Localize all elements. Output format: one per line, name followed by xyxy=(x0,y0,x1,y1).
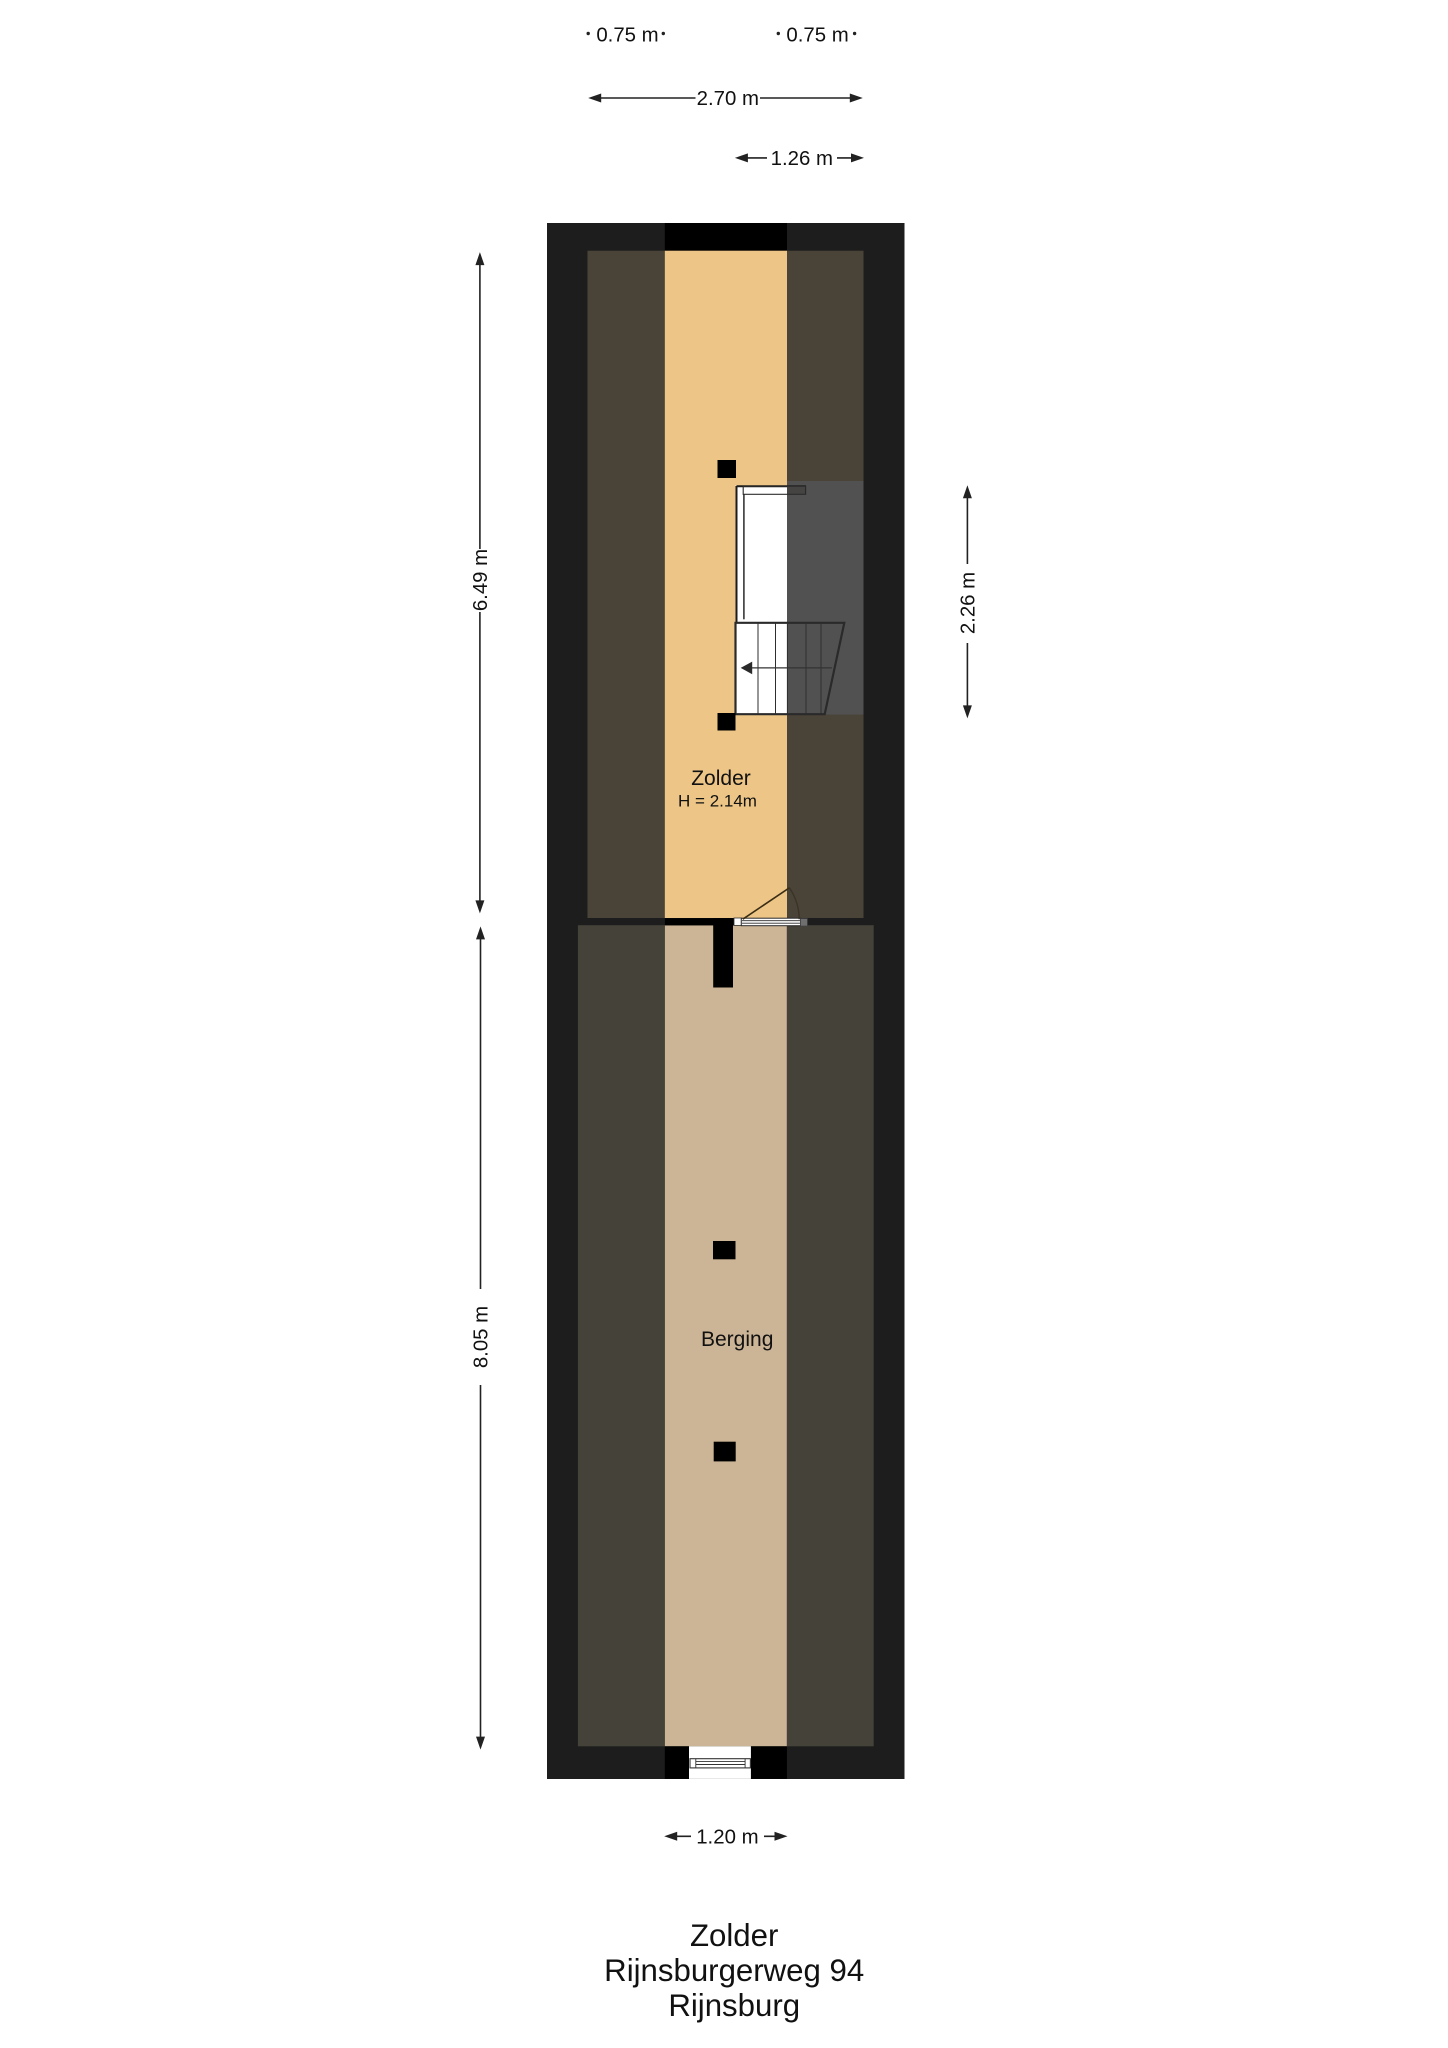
svg-text:6.49 m: 6.49 m xyxy=(470,549,492,611)
svg-text:Rijnsburgerweg 94: Rijnsburgerweg 94 xyxy=(604,1953,864,1988)
svg-text:2.70 m: 2.70 m xyxy=(697,88,759,110)
svg-text:Rijnsburg: Rijnsburg xyxy=(668,1988,800,2023)
svg-text:1.20 m: 1.20 m xyxy=(696,1827,758,1849)
svg-text:0.75 m: 0.75 m xyxy=(596,25,658,47)
svg-text:Berging: Berging xyxy=(701,1328,773,1351)
svg-text:0.75 m: 0.75 m xyxy=(786,25,848,47)
svg-text:Zolder: Zolder xyxy=(690,1918,778,1953)
svg-text:1.26 m: 1.26 m xyxy=(771,148,833,170)
svg-text:2.26 m: 2.26 m xyxy=(958,572,980,634)
svg-text:Zolder: Zolder xyxy=(691,767,751,790)
svg-text:8.05 m: 8.05 m xyxy=(471,1306,493,1368)
svg-text:H = 2.14m: H = 2.14m xyxy=(678,792,757,811)
